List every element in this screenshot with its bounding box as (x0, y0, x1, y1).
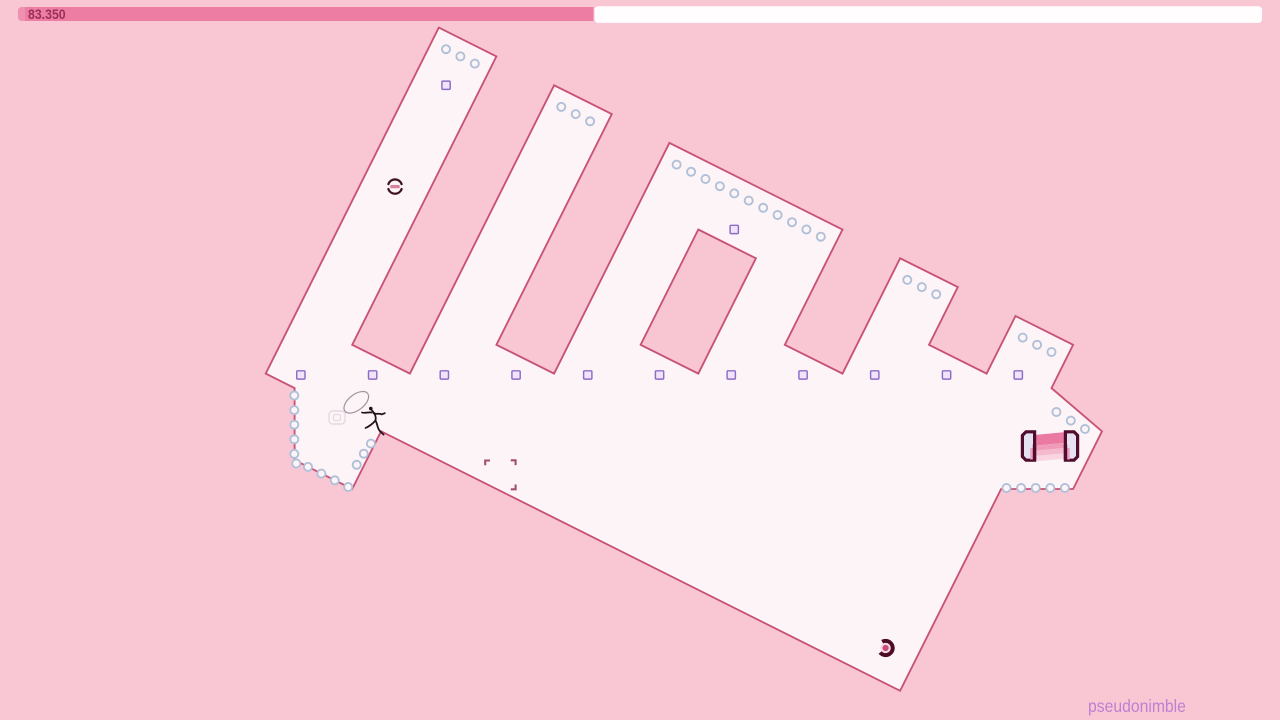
svg-text:83.350: 83.350 (28, 6, 66, 22)
svg-text:pseudonimble: pseudonimble (1088, 696, 1186, 716)
